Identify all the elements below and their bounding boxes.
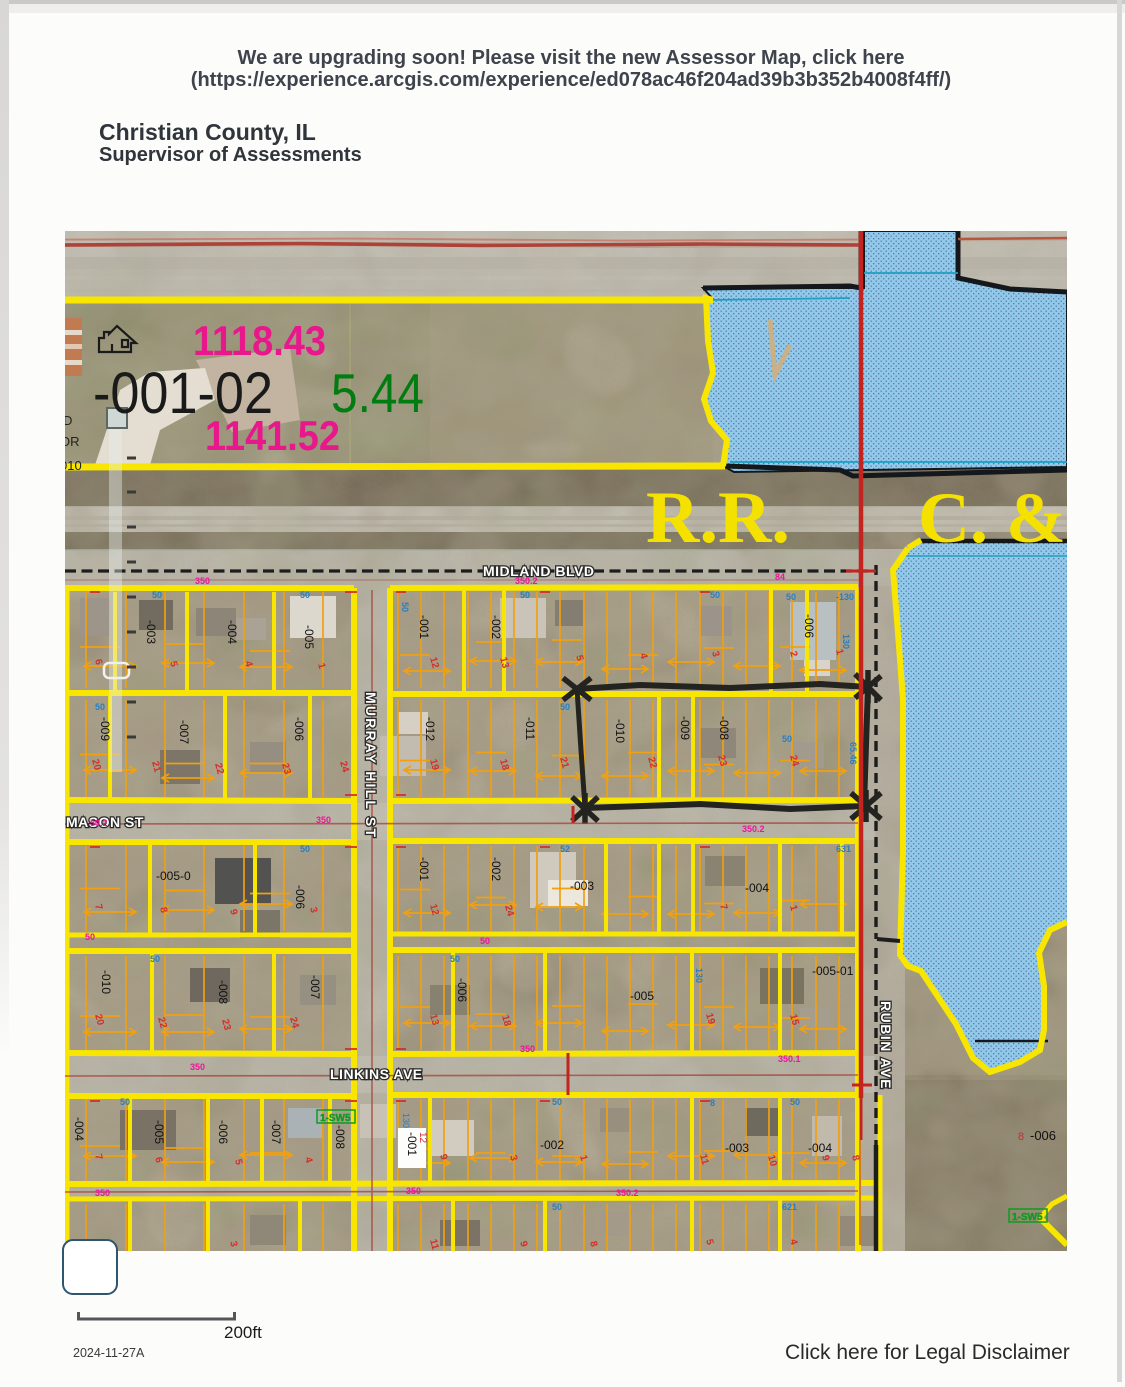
svg-text:-006: -006 [216,1120,230,1144]
svg-text:350: 350 [316,815,331,825]
svg-text:8: 8 [1018,1131,1024,1143]
svg-text:50: 50 [300,844,310,854]
svg-text:50: 50 [782,734,792,744]
svg-text:50: 50 [480,936,490,946]
svg-text:12: 12 [417,1132,428,1144]
svg-text:50: 50 [520,590,530,600]
svg-text:50: 50 [400,602,410,612]
svg-text:50: 50 [150,954,160,964]
svg-text:-010: -010 [613,719,627,743]
svg-text:-006: -006 [1030,1128,1056,1143]
svg-text:84: 84 [775,572,785,582]
svg-text:350.1: 350.1 [778,1054,801,1064]
svg-text:350: 350 [520,1044,535,1054]
svg-text:50: 50 [552,1202,562,1212]
svg-text:MURRAY HILL ST: MURRAY HILL ST [363,692,379,839]
svg-text:50: 50 [560,702,570,712]
svg-text:350.2: 350.2 [616,1188,639,1198]
svg-text:-003: -003 [570,879,594,893]
svg-text:-007: -007 [177,720,191,744]
svg-text:-003: -003 [725,1141,749,1155]
svg-text:-004: -004 [808,1141,832,1155]
svg-text:-012: -012 [423,717,437,741]
svg-text:50: 50 [790,1097,800,1107]
svg-text:130: 130 [841,634,851,649]
svg-text:50: 50 [152,590,162,600]
svg-text:-004: -004 [225,620,239,644]
svg-text:1118.43: 1118.43 [193,317,326,364]
svg-text:2024-11-27A: 2024-11-27A [73,1346,145,1360]
svg-text:-007: -007 [308,975,322,999]
svg-text:50: 50 [710,590,720,600]
svg-text:-003: -003 [144,620,158,644]
svg-text:50: 50 [300,590,310,600]
svg-text:-010: -010 [99,970,113,994]
svg-text:-005: -005 [152,1120,166,1144]
svg-text:631: 631 [836,844,851,854]
svg-text:-008: -008 [216,980,230,1004]
svg-text:350: 350 [195,576,210,586]
svg-text:200ft: 200ft [224,1323,262,1342]
svg-text:LINKINS AVE: LINKINS AVE [330,1066,423,1082]
svg-text:-005: -005 [630,989,654,1003]
svg-text:-011: -011 [523,717,537,740]
svg-text:C. &: C. & [918,478,1066,558]
svg-text:-006: -006 [293,885,307,909]
svg-text:130: 130 [694,968,704,983]
svg-text:-005: -005 [302,625,316,649]
svg-text:130: 130 [401,1113,411,1128]
svg-text:350.2: 350.2 [515,576,538,586]
svg-text:50: 50 [786,592,796,602]
svg-text:5.44: 5.44 [331,362,424,424]
svg-text:50.2: 50.2 [90,818,108,828]
svg-text:-001: -001 [405,1132,419,1156]
svg-text:350: 350 [406,1186,421,1196]
svg-text:8: 8 [710,1098,715,1108]
svg-text:-004: -004 [745,881,769,895]
svg-text:65.46: 65.46 [848,742,858,765]
svg-text:-002: -002 [540,1138,564,1152]
svg-text:50: 50 [450,954,460,964]
svg-text:RUBIN AVE: RUBIN AVE [878,1001,894,1090]
svg-text:50: 50 [552,1097,562,1107]
svg-text:1141.52: 1141.52 [205,412,340,459]
svg-text:-006: -006 [455,978,469,1002]
svg-text:-130: -130 [836,592,854,602]
svg-text:50: 50 [95,702,105,712]
svg-text:-004: -004 [72,1117,86,1141]
svg-text:-009: -009 [678,716,692,740]
svg-text:-002: -002 [489,615,503,639]
svg-text:-005-01: -005-01 [812,964,854,978]
svg-text:-007: -007 [269,1120,283,1144]
svg-text:-008: -008 [333,1125,347,1149]
svg-text:-008: -008 [717,716,731,740]
svg-text:50: 50 [120,1097,130,1107]
svg-text:We are upgrading soon! Please: We are upgrading soon! Please visit the … [238,47,905,69]
svg-text:-005-0: -005-0 [156,869,191,883]
svg-text:-002: -002 [489,857,503,881]
svg-text:MIDLAND BLVD: MIDLAND BLVD [483,563,595,579]
svg-text:-001: -001 [417,615,431,639]
svg-text:-006: -006 [802,614,816,638]
svg-text:-006: -006 [292,717,306,741]
svg-text:350: 350 [190,1062,205,1072]
svg-text:50: 50 [85,932,95,942]
svg-text:350.2: 350.2 [742,824,765,834]
svg-text:Click here for Legal Disclaime: Click here for Legal Disclaimer [785,1341,1070,1364]
svg-text:621: 621 [782,1202,797,1212]
svg-text:52: 52 [560,844,570,854]
svg-text:Supervisor of Assessments: Supervisor of Assessments [99,144,362,166]
svg-text:350: 350 [95,1188,110,1198]
svg-text:R.R.: R.R. [646,477,790,559]
svg-text:-009: -009 [98,717,112,741]
svg-text:(https://experience.arcgis.com: (https://experience.arcgis.com/experienc… [191,69,951,91]
svg-text:Christian County, IL: Christian County, IL [99,119,316,145]
svg-text:-001: -001 [417,857,431,881]
